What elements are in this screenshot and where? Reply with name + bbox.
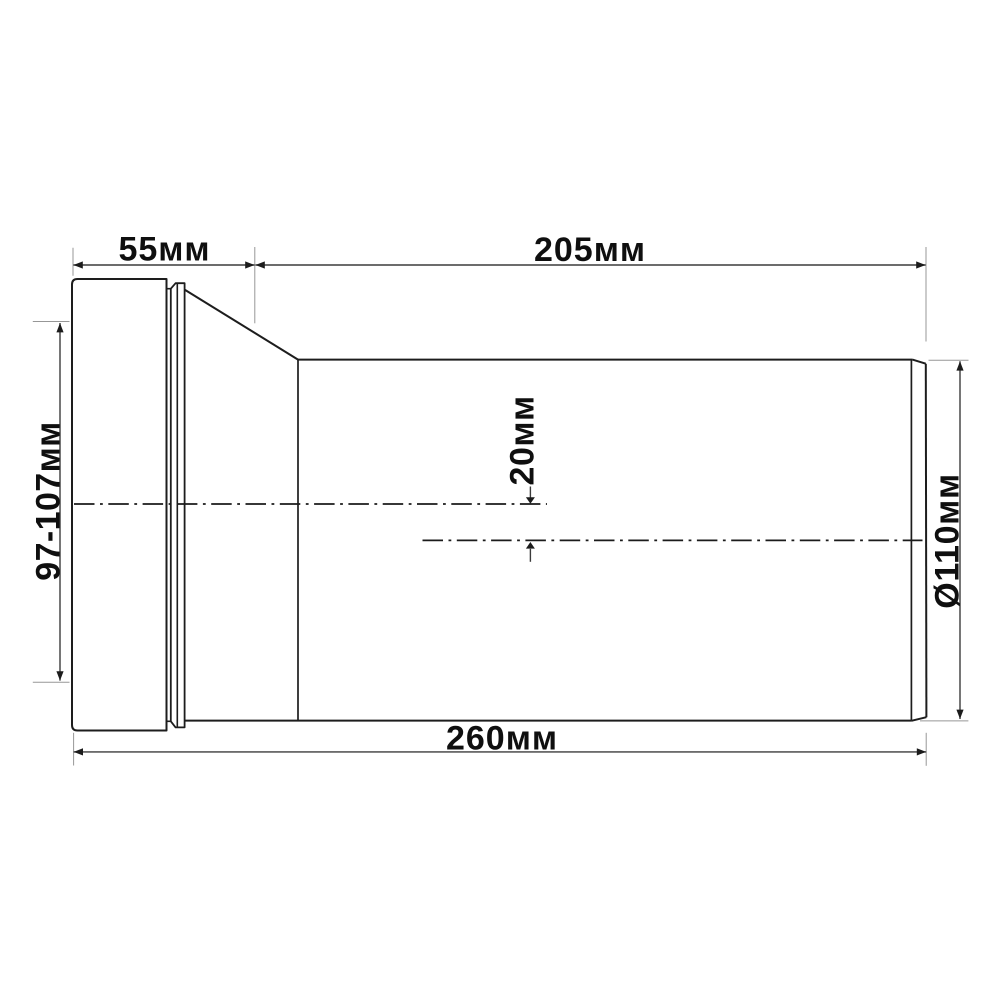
svg-text:97-107мм: 97-107мм [29, 421, 67, 580]
svg-text:260мм: 260мм [446, 720, 558, 758]
svg-text:20мм: 20мм [504, 395, 542, 485]
svg-text:Ø110мм: Ø110мм [929, 473, 967, 609]
svg-text:205мм: 205мм [534, 231, 646, 269]
svg-text:55мм: 55мм [118, 231, 210, 269]
